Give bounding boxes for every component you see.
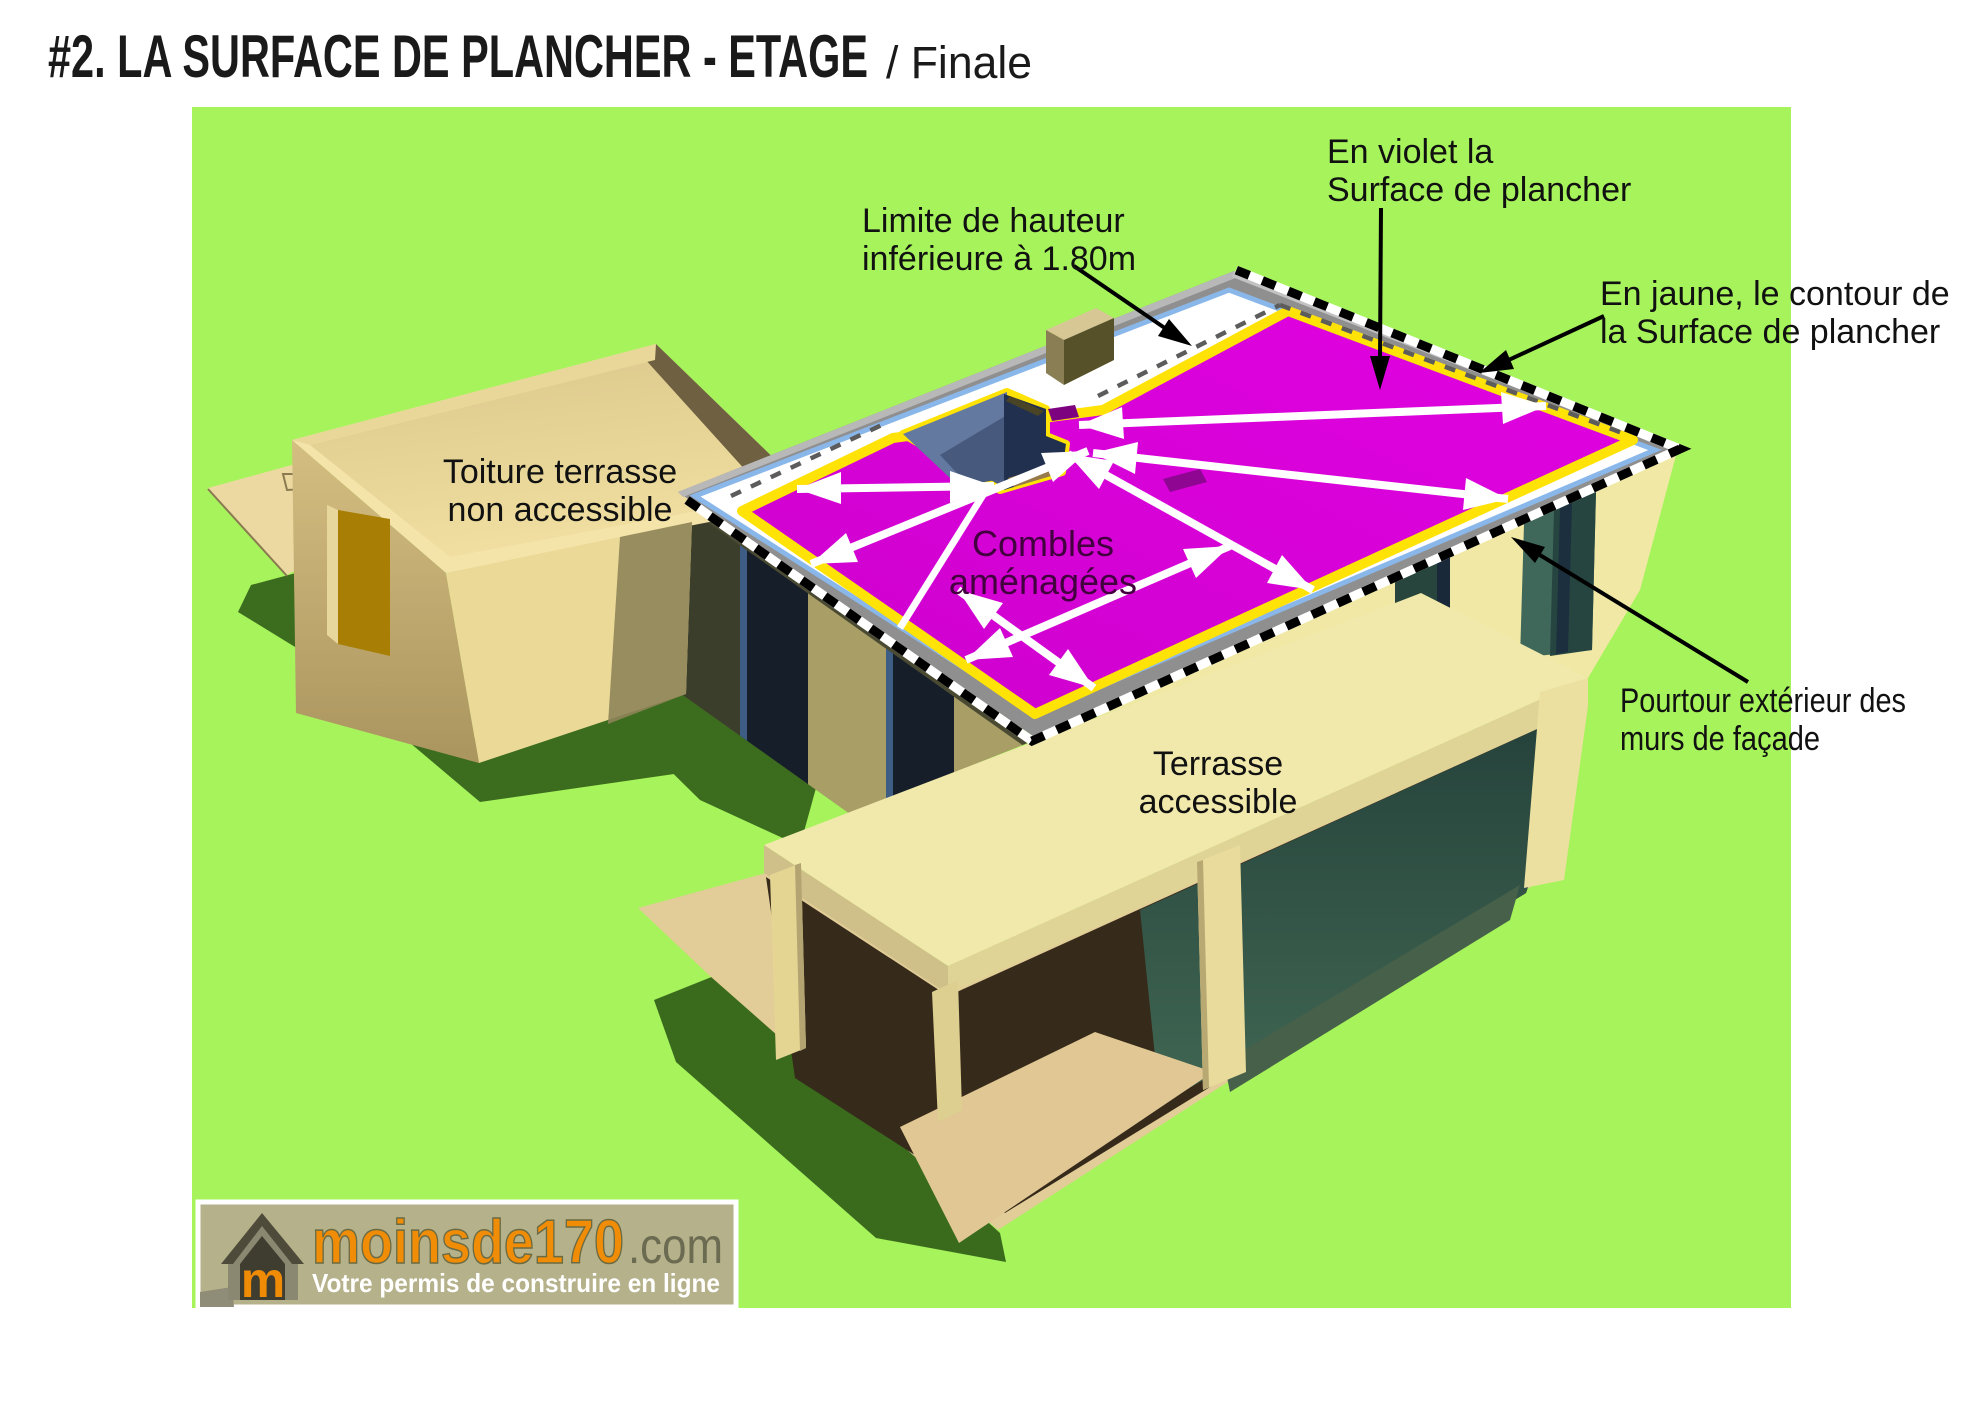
svg-text:/ Finale: / Finale <box>886 37 1032 88</box>
svg-text:#2. LA SURFACE DE PLANCHER - E: #2. LA SURFACE DE PLANCHER - ETAGE <box>48 23 868 90</box>
svg-text:En jaune, le contour de: En jaune, le contour de <box>1600 275 1950 313</box>
svg-text:Surface de plancher: Surface de plancher <box>1327 171 1631 209</box>
svg-text:aménagées: aménagées <box>949 561 1137 602</box>
svg-text:Pourtour extérieur des: Pourtour extérieur des <box>1620 682 1906 720</box>
svg-text:.com: .com <box>628 1218 723 1274</box>
svg-text:Votre permis de construire en: Votre permis de construire en ligne <box>312 1268 720 1298</box>
svg-text:non accessible: non accessible <box>448 491 673 529</box>
svg-text:murs de façade: murs de façade <box>1620 720 1820 758</box>
svg-text:Combles: Combles <box>972 523 1114 564</box>
svg-text:Limite de hauteur: Limite de hauteur <box>862 202 1125 240</box>
svg-text:m: m <box>241 1252 285 1308</box>
svg-text:Toiture terrasse: Toiture terrasse <box>443 453 677 491</box>
svg-text:Terrasse: Terrasse <box>1153 745 1283 783</box>
svg-text:inférieure à 1.80m: inférieure à 1.80m <box>862 240 1136 278</box>
svg-text:moinsde170: moinsde170 <box>312 1208 624 1277</box>
svg-text:la Surface de plancher: la Surface de plancher <box>1600 313 1940 351</box>
svg-text:accessible: accessible <box>1139 783 1298 821</box>
svg-text:En violet la: En violet la <box>1327 133 1493 171</box>
